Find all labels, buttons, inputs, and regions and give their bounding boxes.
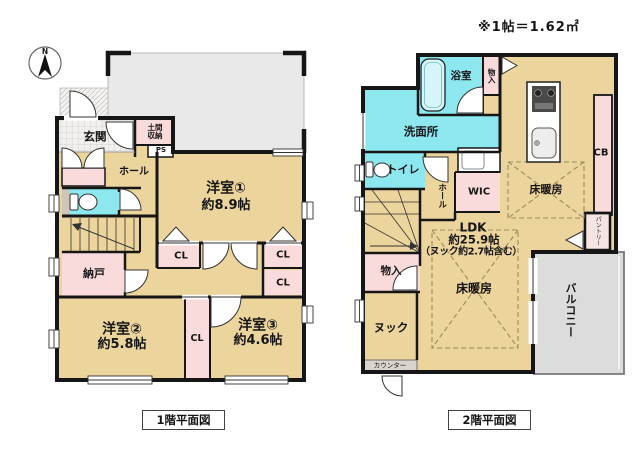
label-room1-name: 洋室① — [206, 181, 246, 196]
label-floor-heating-2: 床暖房 — [456, 282, 492, 295]
label-balcony: バルコニー — [564, 283, 576, 338]
balcony-area — [533, 252, 624, 374]
label-cb: CB — [594, 148, 609, 159]
label-wic: WIC — [468, 187, 490, 198]
label-monoire-top: 物入 — [487, 69, 495, 84]
bathtub-icon — [421, 59, 445, 111]
label-room3-name: 洋室③ — [238, 318, 278, 333]
label-senmenjo: 洗面所 — [404, 126, 439, 139]
label-hall-1f: ホール — [119, 167, 149, 178]
floorplan-page: ※1帖＝1.62㎡ N 玄関 土間収納 PS ホール 洋室① 約8.9帖 納戸 … — [0, 0, 640, 449]
label-monoire-mid: 物入 — [381, 266, 402, 278]
label-floor-heating-1: 床暖房 — [530, 184, 563, 196]
label-toilet-2f: トイレ — [387, 164, 420, 176]
tatami-note: ※1帖＝1.62㎡ — [478, 16, 580, 35]
label-room1-size: 約8.9帖 — [201, 199, 250, 213]
label-cl-mid: CL — [190, 334, 203, 344]
shoe-cabinet — [62, 168, 105, 186]
compass-n-label: N — [42, 48, 48, 56]
label-cl-1: CL — [174, 251, 188, 262]
kitchen-island-icon — [527, 82, 560, 162]
toilet-icon — [70, 194, 97, 210]
label-doma-shuno: 土間収納 — [146, 124, 164, 141]
label-room2-size: 約5.8帖 — [97, 338, 146, 352]
floor2-plan — [355, 55, 624, 396]
label-pantry: パントリー — [594, 216, 601, 246]
label-ldk-note: （ヌック約2.7帖含む） — [420, 247, 522, 258]
label-cl-2: CL — [276, 250, 290, 261]
label-genkan: 玄関 — [84, 131, 107, 144]
label-room3-size: 約4.6帖 — [233, 334, 282, 348]
label-nando: 納戸 — [83, 268, 105, 280]
label-bath: 浴室 — [451, 71, 472, 83]
label-cl-3: CL — [276, 278, 290, 289]
plan-drawing — [0, 0, 640, 449]
label-nook: ヌック — [374, 322, 409, 335]
label-hall-2f: ホール — [436, 183, 445, 209]
label-counter: カウンター — [374, 362, 407, 369]
label-ldk-size: 約25.9帖 — [448, 234, 499, 247]
label-room2-name: 洋室② — [102, 322, 142, 337]
floor1-caption: 1階平面図 — [142, 410, 225, 430]
label-ps: PS — [156, 147, 166, 155]
floor2-caption: 2階平面図 — [448, 410, 531, 430]
